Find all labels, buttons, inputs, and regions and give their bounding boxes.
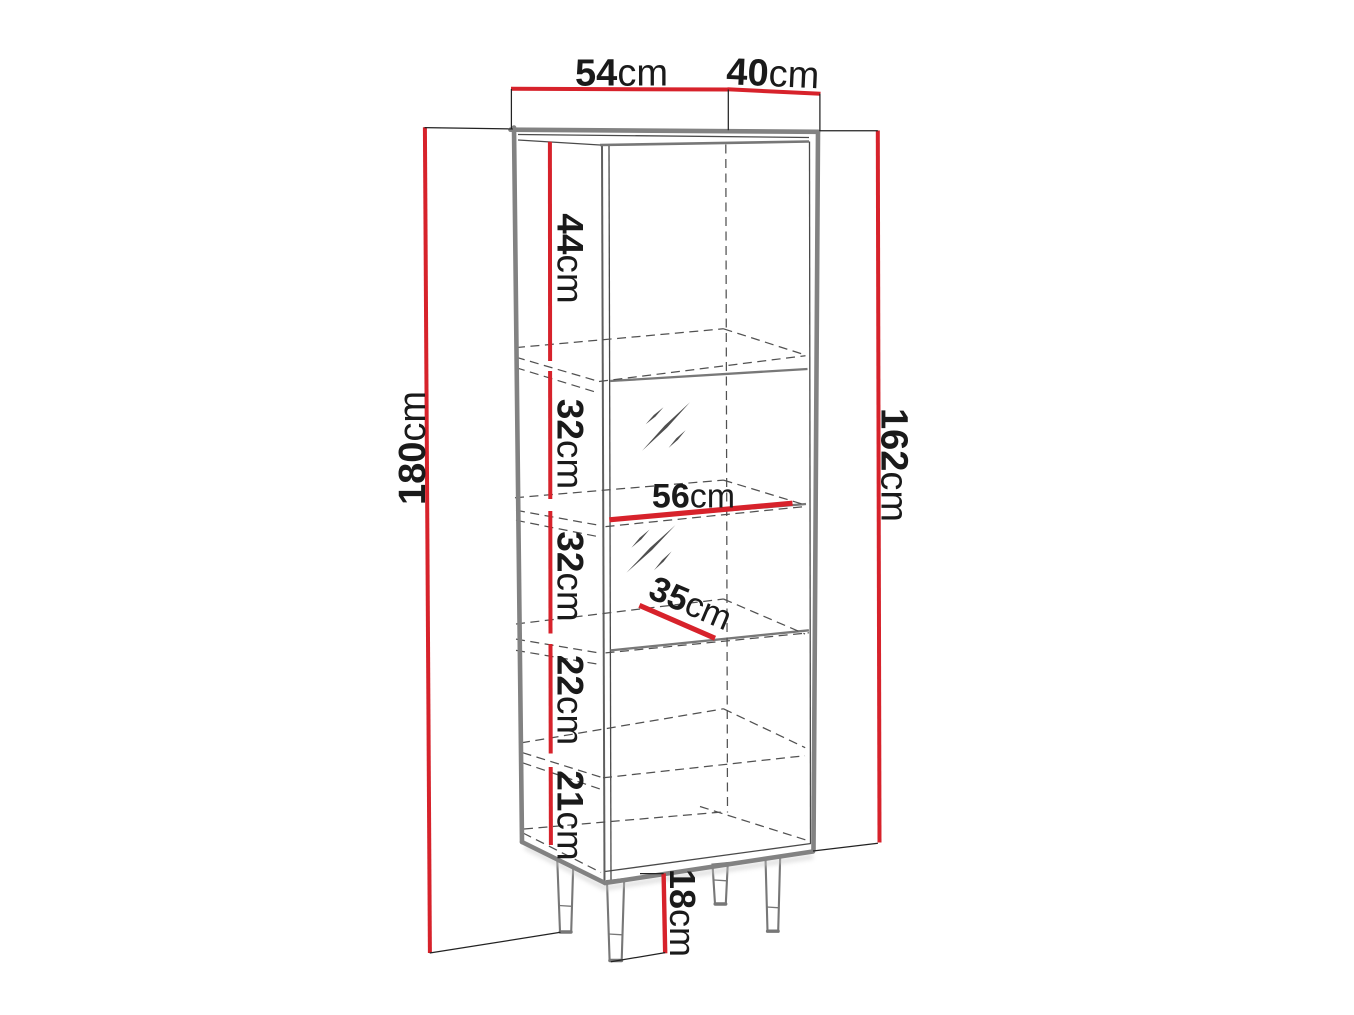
svg-text:44cm: 44cm — [550, 213, 591, 303]
svg-text:18cm: 18cm — [662, 869, 703, 957]
svg-text:180cm: 180cm — [392, 391, 434, 505]
svg-text:56cm: 56cm — [652, 478, 735, 516]
svg-text:21cm: 21cm — [550, 770, 591, 860]
svg-text:40cm: 40cm — [725, 51, 820, 97]
svg-text:162cm: 162cm — [873, 408, 915, 522]
svg-text:32cm: 32cm — [550, 531, 591, 621]
svg-text:22cm: 22cm — [550, 655, 591, 745]
svg-text:54cm: 54cm — [575, 53, 668, 95]
svg-text:32cm: 32cm — [550, 399, 591, 489]
